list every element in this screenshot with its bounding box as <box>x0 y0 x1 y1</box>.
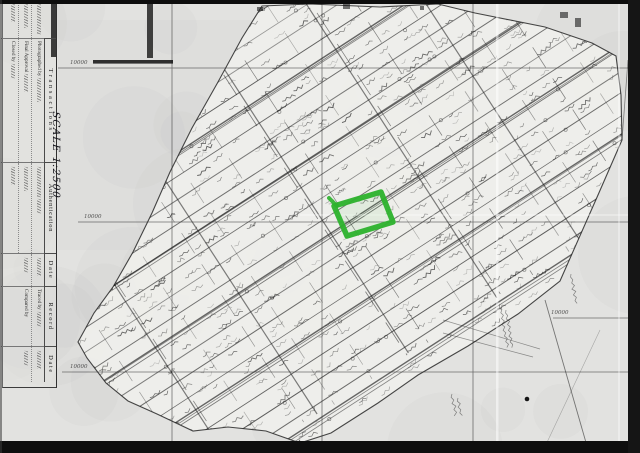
header-date1-label: Date <box>47 261 54 280</box>
grid-coordinate-label: 10000 <box>84 214 102 220</box>
row-compared-by-label: Compared by <box>23 289 29 317</box>
row-traced-by-label: Traced by <box>36 289 42 310</box>
row-closed-by-label: Closed by <box>10 41 16 62</box>
scanned-map-sheet: 10000100001000010000 Transactions Authen… <box>0 0 640 453</box>
scan-left-border <box>0 0 2 453</box>
margin-table-date1-rows <box>1 253 44 286</box>
margin-table-transaction-rows: Photographed by Final Approval Closed by <box>1 38 44 162</box>
row-final-approval: Final Approval <box>18 39 31 162</box>
row-closed-by: Closed by <box>5 39 18 162</box>
scan-right-border <box>628 0 640 453</box>
margin-table-header-record: Record <box>44 286 56 346</box>
row-photographed-by: Photographed by <box>31 39 44 162</box>
margin-table-date2-rows <box>1 346 44 382</box>
header-record-label: Record <box>47 302 54 330</box>
cadastral-map-scan: 10000100001000010000 <box>0 0 640 453</box>
margin-table-header-date1: Date <box>44 253 56 286</box>
row-compared-by: Compared by <box>18 287 31 346</box>
row-photographed-by-label: Photographed by <box>36 41 42 76</box>
row-traced-by: Traced by <box>31 287 44 346</box>
margin-table-authentication-rows <box>1 162 44 253</box>
scan-top-border <box>0 0 640 4</box>
grid-coordinate-label: 10000 <box>70 364 88 370</box>
scale-label: SCALE 1:2500 <box>44 110 61 216</box>
scan-bottom-border <box>0 441 640 453</box>
margin-table-record-rows: Traced by Compared by <box>1 286 44 346</box>
grid-coordinate-label: 10000 <box>70 60 88 66</box>
grid-coordinate-label: 10000 <box>551 310 569 316</box>
margin-table-stub-entries <box>1 0 44 38</box>
row-final-approval-label: Final Approval <box>23 41 29 72</box>
margin-table-header-date2: Date <box>44 346 56 382</box>
header-date2-label: Date <box>47 355 54 374</box>
